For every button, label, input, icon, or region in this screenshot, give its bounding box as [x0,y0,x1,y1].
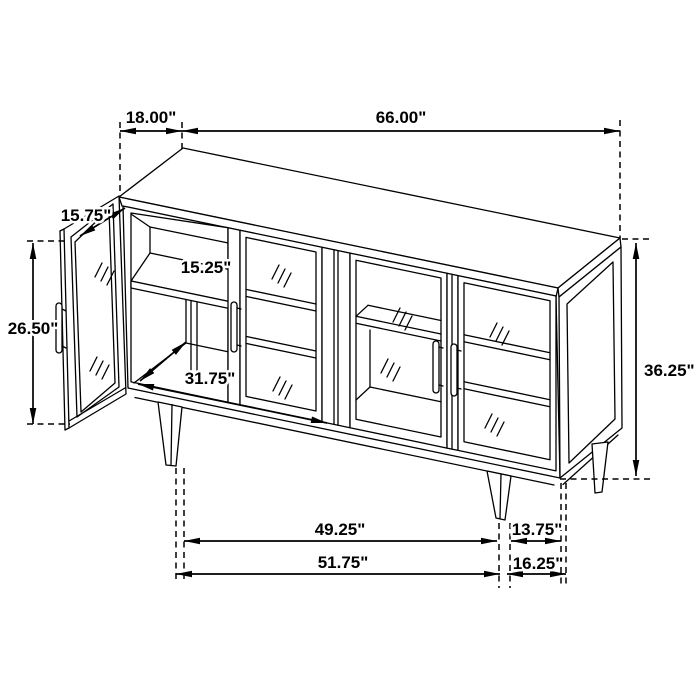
dimension-door-height: 26.50" [8,243,59,424]
dimension-label-cabinet-height: 36.25" [644,361,695,380]
dimension-base-width: 51.75" [176,553,500,574]
center-mullion [322,247,350,427]
open-glass-door [56,196,126,430]
glass-door-right-closed [451,276,556,471]
dimension-label-top-width: 66.00" [376,108,427,127]
dimension-top-width: 66.00" [182,108,620,131]
glass-door-left-closed [231,230,322,422]
dimension-label-door-width: 15.75" [61,206,112,225]
cabinet-drawing [56,148,622,520]
dimension-label-side-offset: 16.25" [513,554,564,573]
dimension-label-top-depth: 18.00" [126,108,177,127]
front-left-leg [158,402,182,466]
door-handle [451,344,457,396]
back-right-leg [592,442,608,493]
glass-door-middle-closed [350,253,447,448]
dimension-leg-offset: 13.75" [511,520,562,541]
dimension-side-offset: 16.25" [507,554,566,574]
dimension-leg-span: 49.25" [184,520,497,541]
dimension-label-leg-span: 49.25" [315,520,366,539]
sideboard-dimension-diagram: 18.00" 66.00" 15.75" 26.50" 15.25" 31.75… [0,0,700,700]
dimension-cabinet-height: 36.25" [636,243,695,476]
dimension-label-leg-offset: 13.75" [512,520,563,539]
dimension-label-door-height: 26.50" [8,319,59,338]
dimension-label-base-width: 51.75" [318,553,369,572]
dimension-top-depth: 18.00" [120,108,182,131]
front-right-leg [487,471,511,520]
door-handle [231,302,237,352]
diagram-canvas: 18.00" 66.00" 15.75" 26.50" 15.25" 31.75… [0,0,700,700]
dimension-label-shelf-depth: 15.25" [181,258,232,277]
dimension-label-interior-width: 31.75" [185,369,236,388]
door-handle [433,341,439,393]
